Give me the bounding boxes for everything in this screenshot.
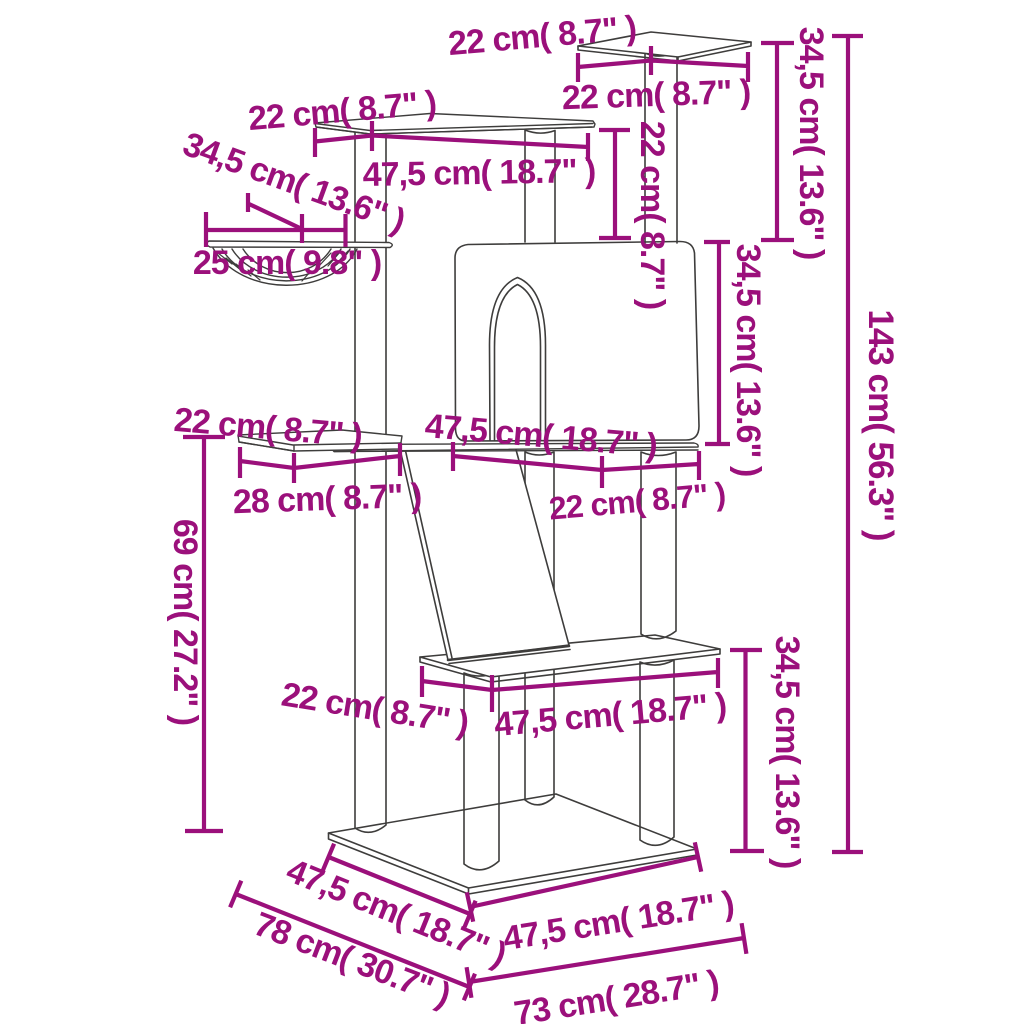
svg-text:69 cm( 27.2" ): 69 cm( 27.2" ) xyxy=(166,519,204,725)
svg-text:34,5 cm( 13.6" ): 34,5 cm( 13.6" ) xyxy=(768,636,806,869)
svg-text:34,5 cm( 13.6" ): 34,5 cm( 13.6" ) xyxy=(792,27,830,260)
svg-text:22 cm( 8.7" ): 22 cm( 8.7" ) xyxy=(561,73,751,118)
svg-text:143 cm( 56.3" ): 143 cm( 56.3" ) xyxy=(861,309,900,540)
svg-text:25 cm( 9.8" ): 25 cm( 9.8" ) xyxy=(193,244,381,282)
svg-text:34,5 cm( 13.6" ): 34,5 cm( 13.6" ) xyxy=(729,244,767,477)
svg-text:22 cm( 8.7" ): 22 cm( 8.7" ) xyxy=(633,121,671,309)
svg-text:28 cm( 8.7" ): 28 cm( 8.7" ) xyxy=(232,477,422,522)
svg-text:47,5 cm( 18.7" ): 47,5 cm( 18.7" ) xyxy=(362,152,595,194)
